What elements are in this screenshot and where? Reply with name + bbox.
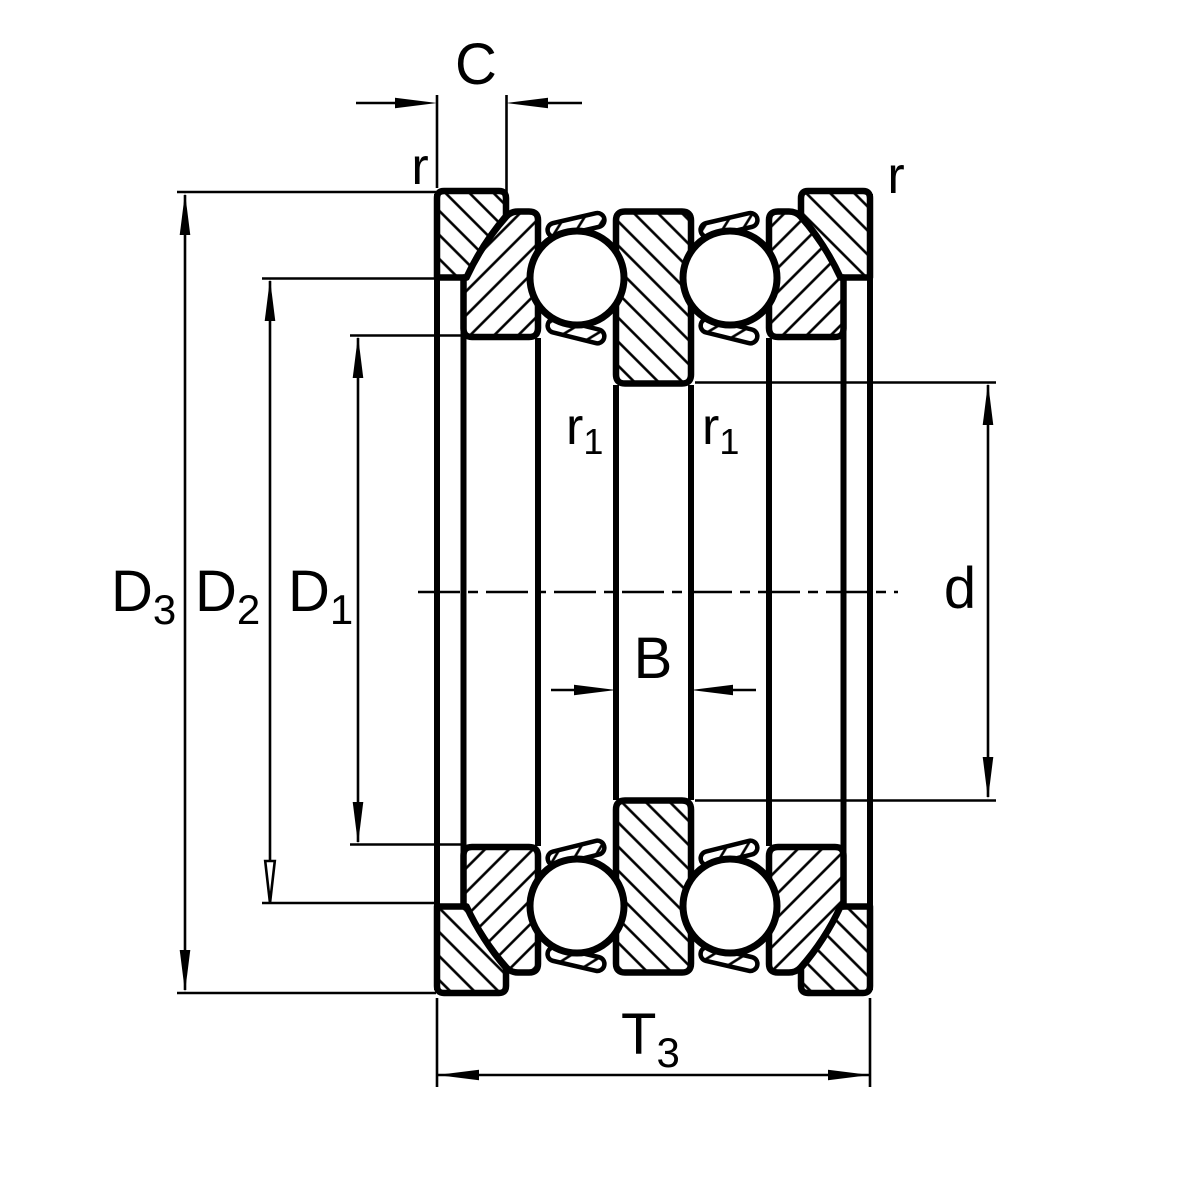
shaft-washer-top (616, 212, 691, 384)
ball-top-right (683, 231, 777, 325)
arrowhead (353, 336, 364, 378)
arrowhead-open (265, 861, 275, 903)
dim-label-c: C (455, 32, 497, 97)
dim-label-d3: D3 (111, 559, 176, 633)
arrowhead (983, 757, 994, 799)
arrowhead (437, 1070, 479, 1081)
dim-label-b: B (634, 626, 673, 691)
bearing-drawing: C r r D3 D2 D1 (0, 0, 1200, 1200)
arrowhead (265, 279, 276, 321)
arrowhead (353, 802, 364, 844)
dim-label-r1-right: r1 (702, 398, 739, 462)
dim-label-r1-left: r1 (566, 398, 603, 462)
dimension-b: B (551, 626, 756, 695)
ball-bottom-right (683, 859, 777, 953)
arrowhead (180, 193, 191, 235)
dim-label-t3: T3 (621, 1002, 680, 1076)
arrowhead (395, 98, 437, 109)
dim-label-r-right: r (887, 147, 904, 205)
shaft-washer-bottom (616, 801, 691, 973)
arrowhead (506, 98, 548, 109)
arrowhead (691, 685, 733, 696)
drawing-canvas: C r r D3 D2 D1 (0, 0, 1200, 1200)
dimension-c: C (356, 32, 582, 214)
dim-label-d1: D1 (288, 559, 353, 633)
dim-label-r-left: r (411, 138, 428, 196)
arrowhead (574, 685, 616, 696)
ball-bottom-left (530, 859, 624, 953)
ball-top-left (530, 231, 624, 325)
arrowhead (983, 383, 994, 425)
arrowhead (828, 1070, 870, 1081)
dimension-t3: T3 (437, 998, 870, 1087)
arrowhead (180, 950, 191, 992)
dim-label-d: d (944, 556, 976, 621)
dim-label-d2: D2 (195, 559, 260, 633)
